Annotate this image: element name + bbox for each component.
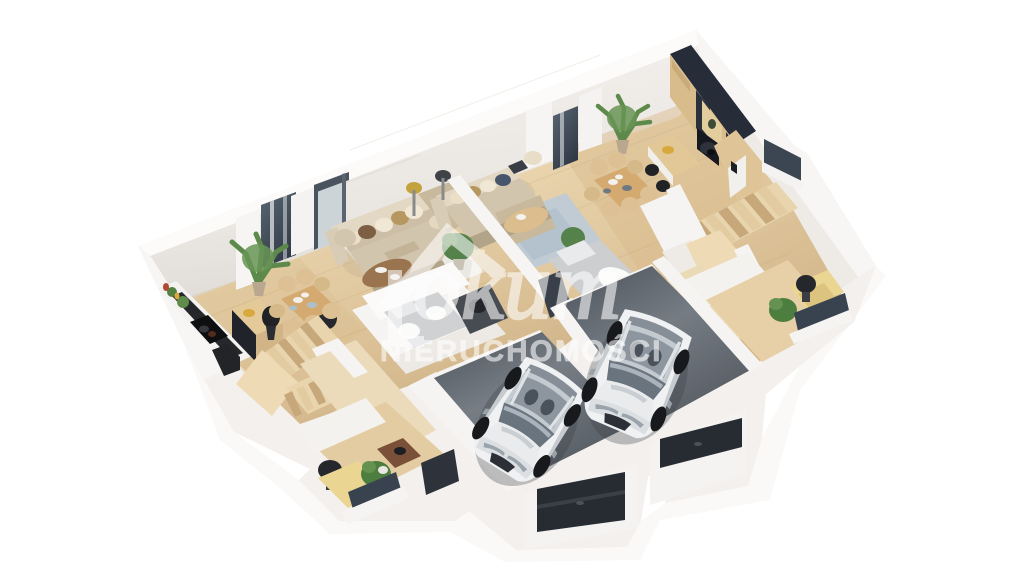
svg-text:NIERUCHOMOŚCI: NIERUCHOMOŚCI (380, 334, 663, 368)
svg-text:okum: okum (413, 232, 621, 339)
